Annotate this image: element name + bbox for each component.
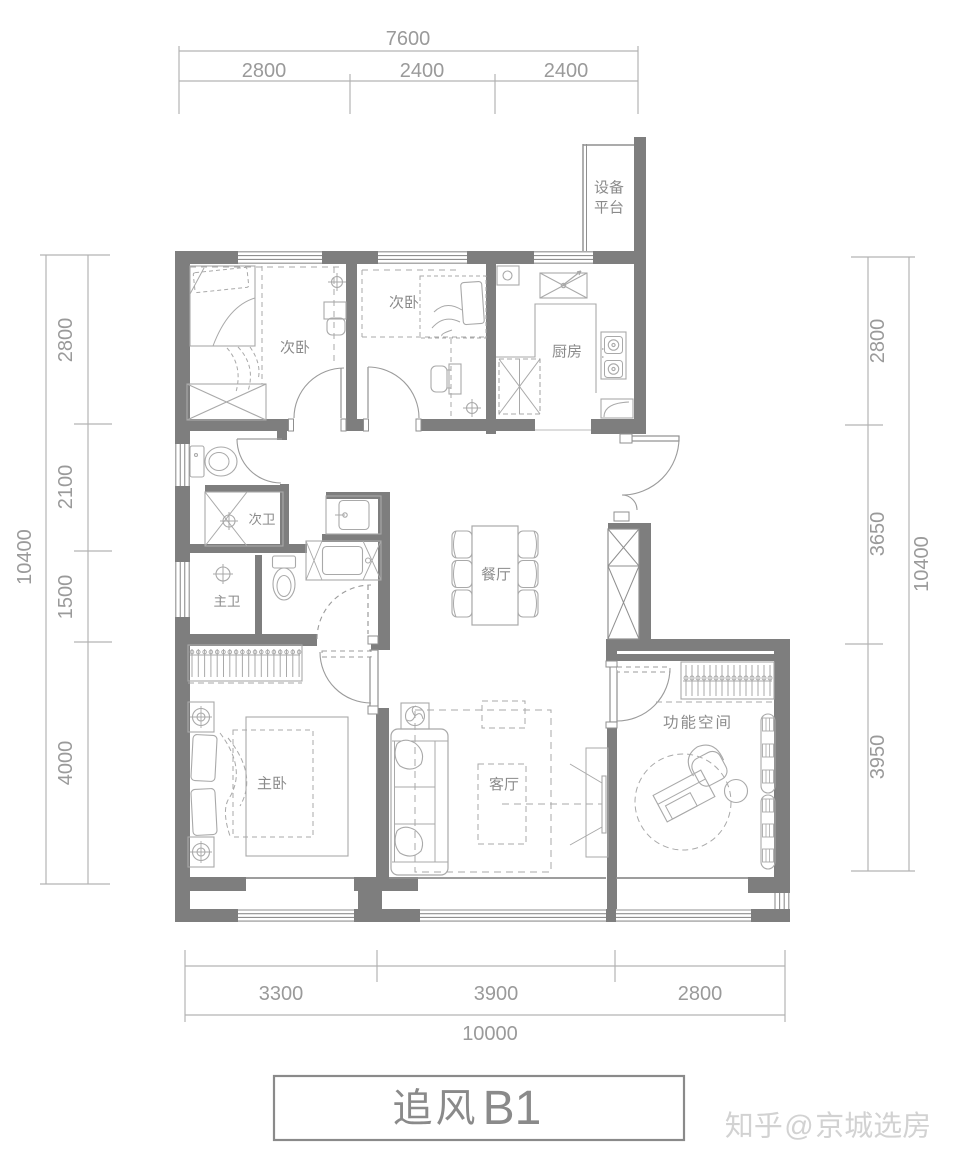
svg-text:2800: 2800	[55, 318, 77, 363]
svg-text:10400: 10400	[911, 536, 933, 592]
svg-text:2800: 2800	[678, 983, 723, 1005]
svg-text:B1: B1	[483, 1082, 542, 1135]
svg-text:2100: 2100	[55, 465, 77, 510]
svg-text:2400: 2400	[544, 60, 589, 82]
svg-text:3650: 3650	[867, 512, 889, 557]
svg-text:3300: 3300	[259, 983, 304, 1005]
svg-text:@: @	[784, 1110, 813, 1142]
svg-text:7600: 7600	[386, 28, 431, 50]
svg-text:2400: 2400	[400, 60, 445, 82]
svg-text:3950: 3950	[867, 735, 889, 780]
svg-text:3900: 3900	[474, 983, 519, 1005]
svg-text:10000: 10000	[462, 1023, 518, 1045]
svg-text:10400: 10400	[14, 529, 36, 585]
svg-text:2800: 2800	[867, 319, 889, 364]
svg-text:4000: 4000	[55, 741, 77, 786]
svg-text:2800: 2800	[242, 60, 287, 82]
svg-text:1500: 1500	[55, 575, 77, 620]
